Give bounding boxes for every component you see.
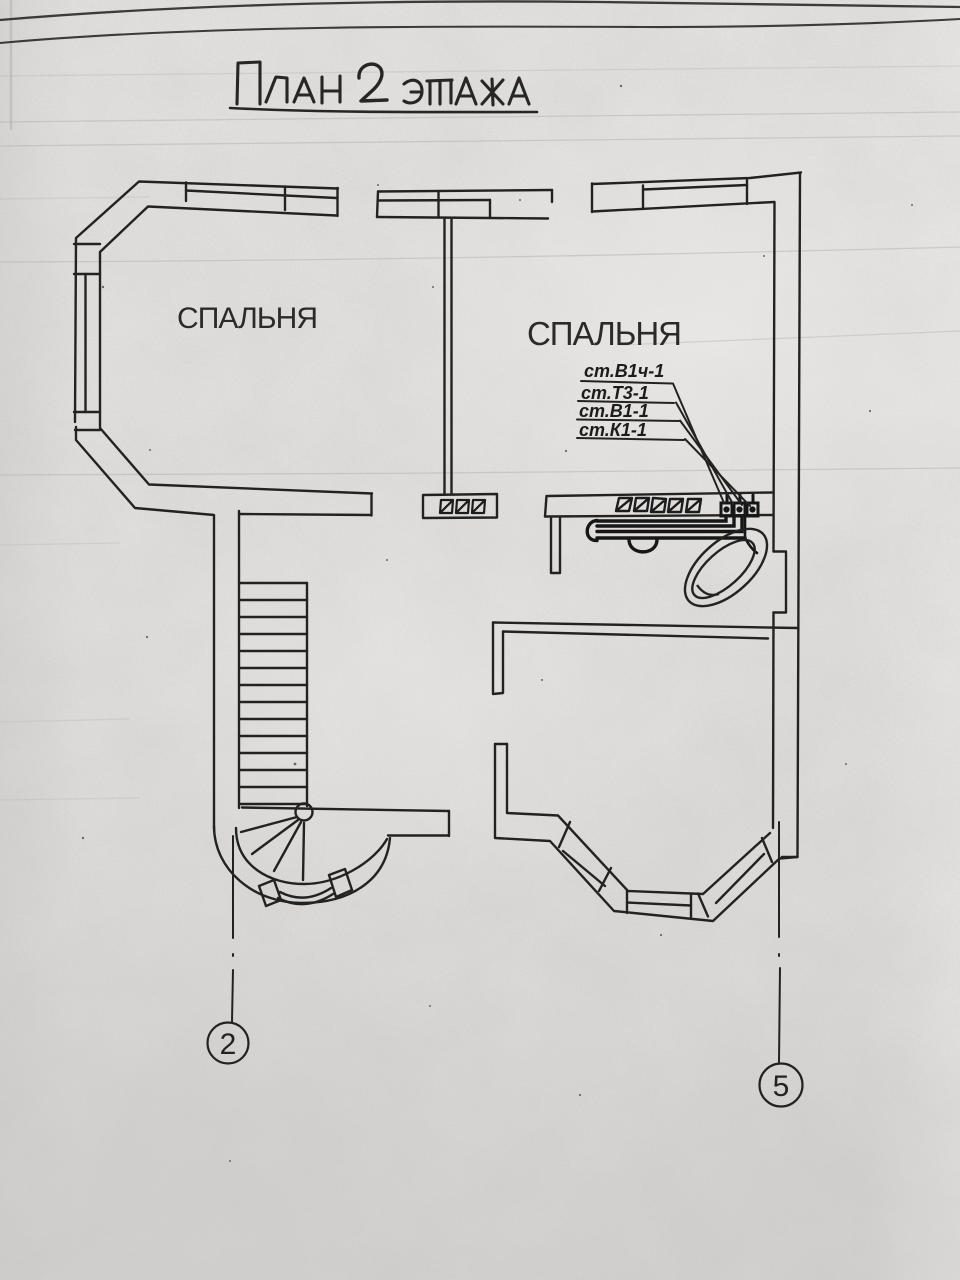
svg-text:СПАЛЬНЯ: СПАЛЬНЯ [177, 302, 318, 335]
svg-text:5: 5 [773, 1070, 790, 1103]
svg-text:СПАЛЬНЯ: СПАЛЬНЯ [527, 315, 682, 352]
svg-text:ст.В1-1: ст.В1-1 [579, 401, 649, 421]
svg-text:ст.В1ч-1: ст.В1ч-1 [584, 361, 664, 381]
svg-text:ст.К1-1: ст.К1-1 [579, 420, 647, 440]
svg-text:2: 2 [220, 1028, 237, 1061]
svg-text:ст.Т3-1: ст.Т3-1 [581, 383, 649, 403]
